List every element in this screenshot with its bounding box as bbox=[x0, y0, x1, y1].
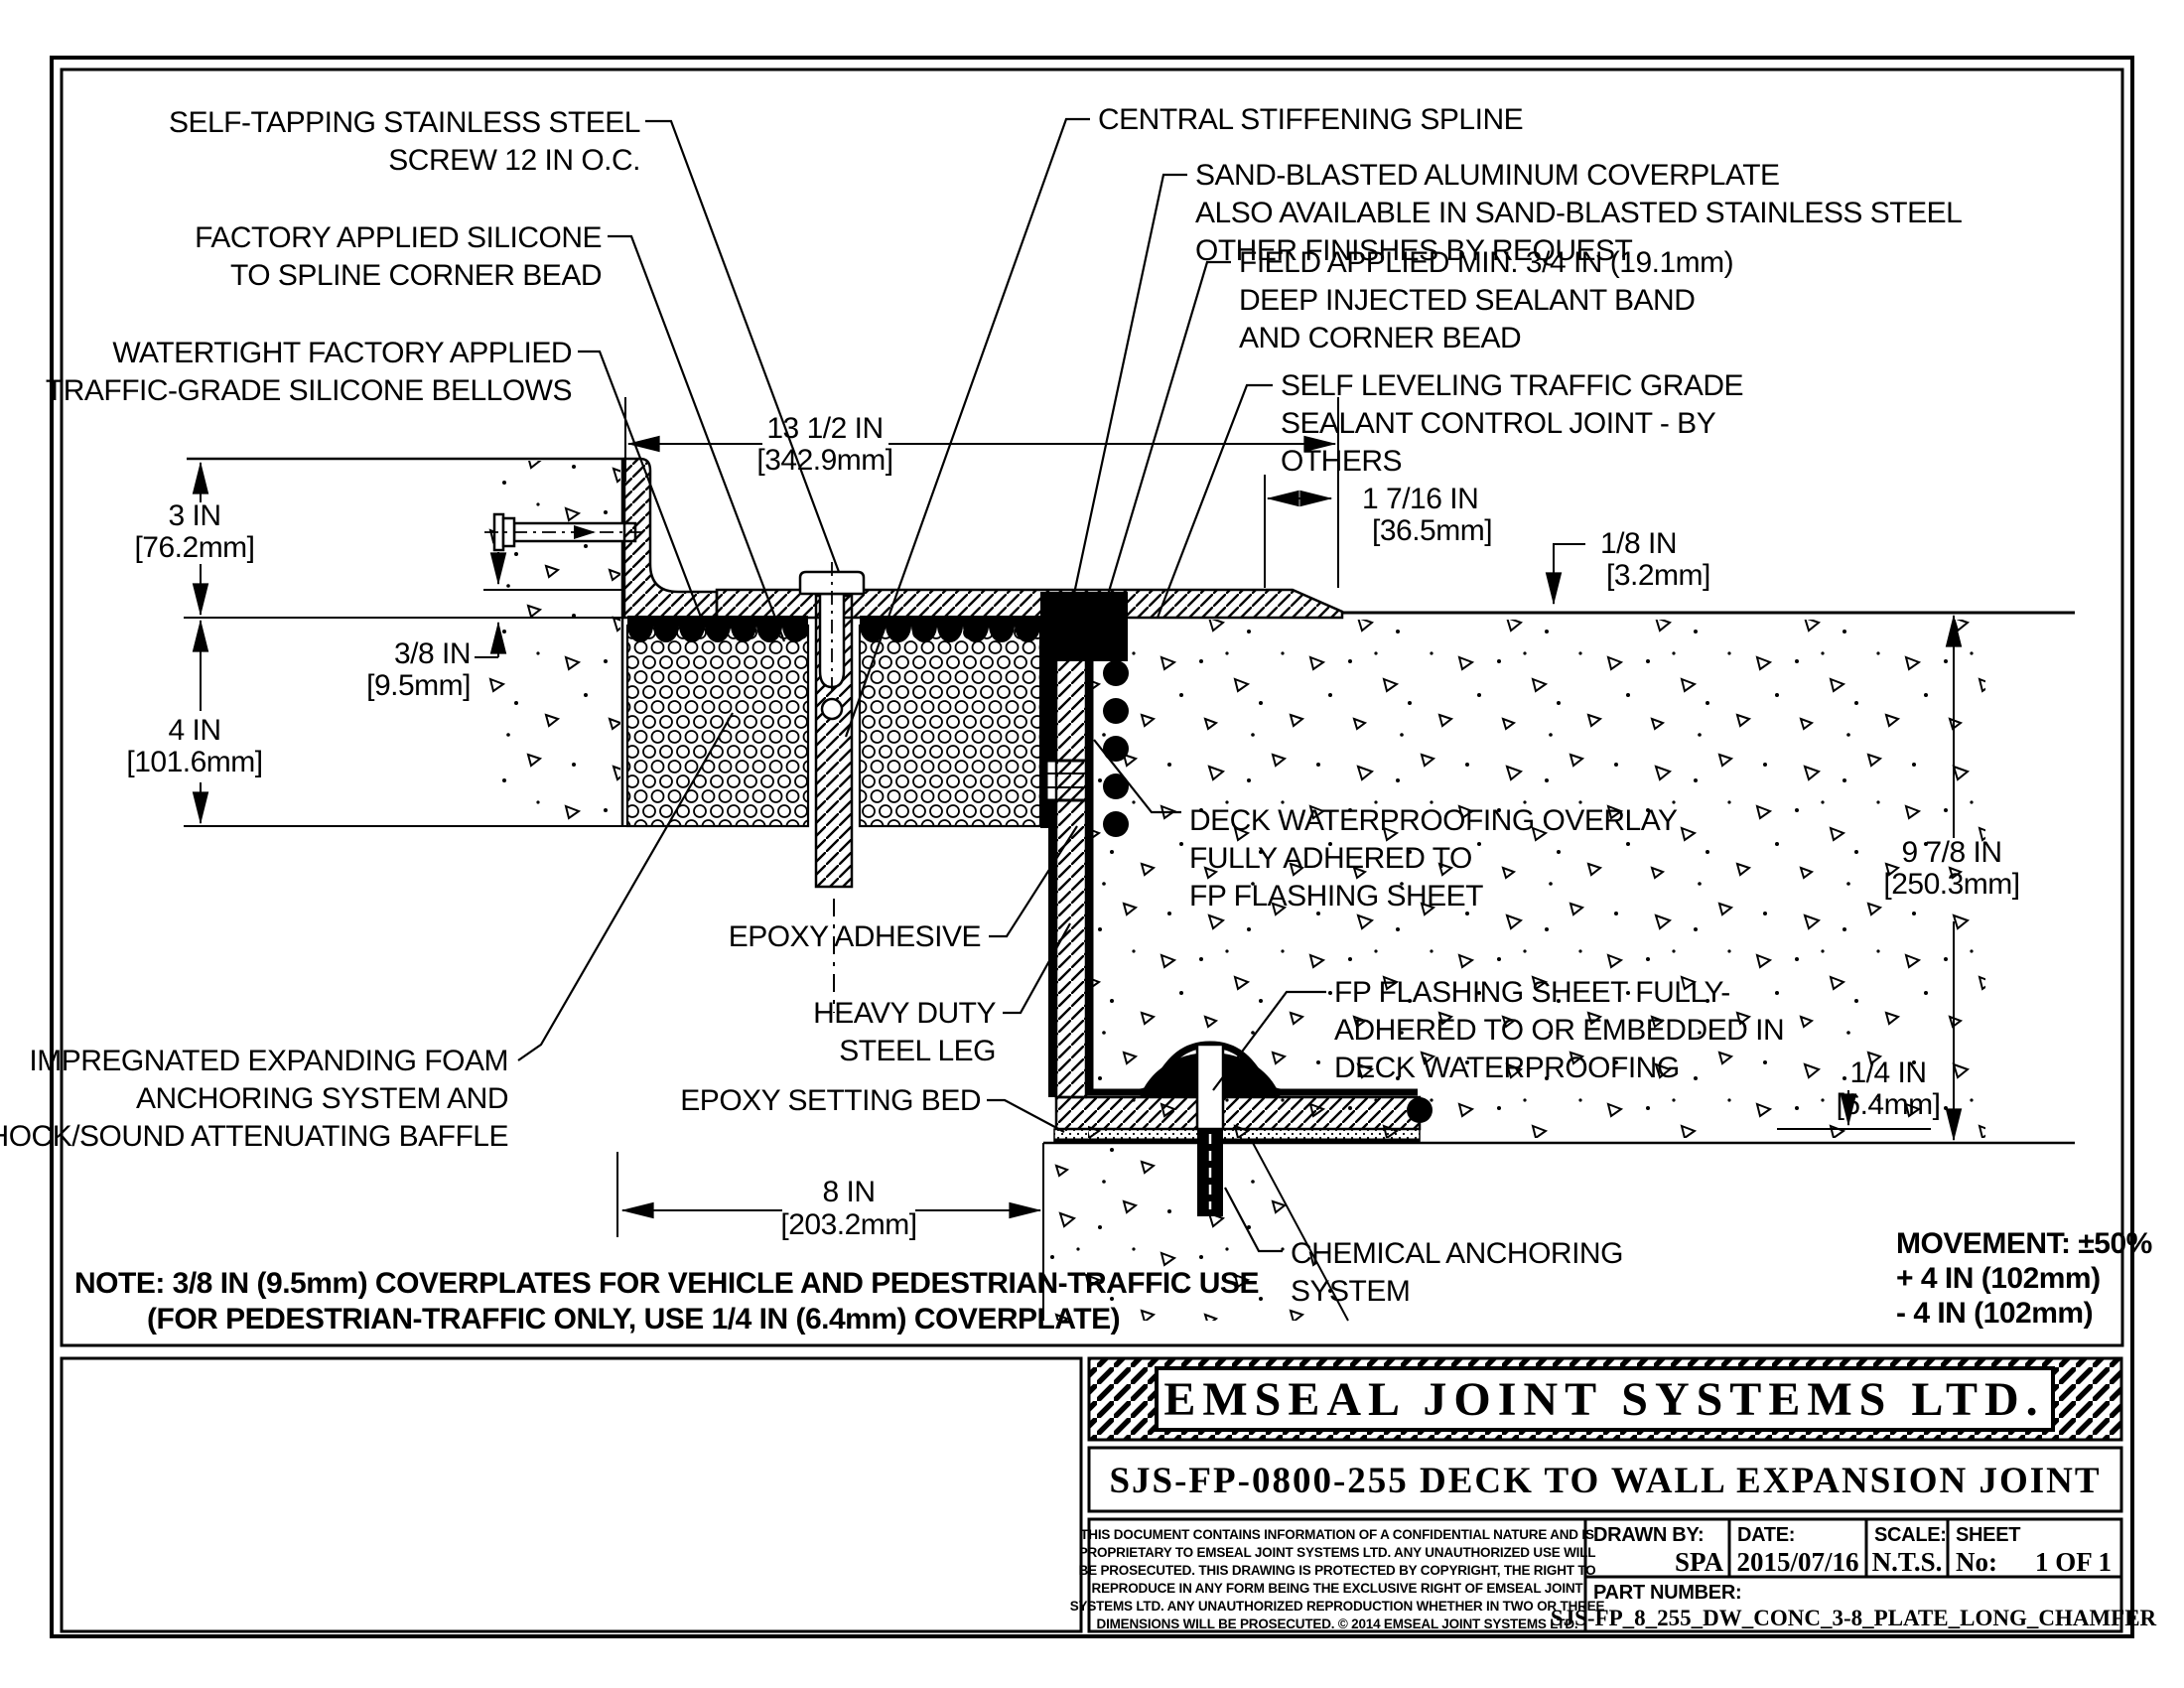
label-deck-waterproofing-line-1: DECK WATERPROOFING OVERLAY bbox=[1189, 804, 1678, 837]
label-field-applied-line-1: FIELD APPLIED MIN. 3/4 IN (19.1mm) bbox=[1239, 246, 1733, 279]
legal-line-3: BE PROSECUTED. THIS DRAWING IS PROTECTED… bbox=[1079, 1563, 1596, 1578]
dim-bed-thickness-line-1: 1/4 IN bbox=[1849, 1056, 1926, 1089]
legal-line-5: SYSTEMS LTD. ANY UNAUTHORIZED REPRODUCTI… bbox=[1070, 1599, 1605, 1614]
title-block: EMSEAL JOINT SYSTEMS LTD. SJS-FP-0800-25… bbox=[62, 1358, 2157, 1631]
dim-joint-opening-line-1: 8 IN bbox=[822, 1176, 875, 1208]
drawing-title-box: SJS-FP-0800-255 DECK TO WALL EXPANSION J… bbox=[1089, 1448, 2121, 1511]
note-line-2: (FOR PEDESTRIAN-TRAFFIC ONLY, USE 1/4 IN… bbox=[147, 1303, 1120, 1336]
left-wall-concrete bbox=[488, 459, 622, 826]
company-name: EMSEAL JOINT SYSTEMS LTD. bbox=[1163, 1373, 2044, 1426]
foam-block-right bbox=[860, 626, 1040, 826]
dim-top-width-line-1: 13 1/2 IN bbox=[766, 412, 883, 445]
dim-plate-lip-line-1: 1/8 IN bbox=[1600, 527, 1677, 560]
label-epoxy-setting-bed: EPOXY SETTING BED bbox=[680, 1084, 981, 1117]
dim-bed-thickness-line-2: [6.4mm] bbox=[1837, 1088, 1941, 1121]
label-fp-flashing-line-3: DECK WATERPROOFING bbox=[1334, 1052, 1680, 1084]
drawing-canvas: 13 1/2 IN [342.9mm] 1 7/16 IN [36.5mm] 1… bbox=[0, 0, 2184, 1688]
label-field-applied-line-3: AND CORNER BEAD bbox=[1239, 322, 1521, 354]
label-factory-silicone-line-2: TO SPLINE CORNER BEAD bbox=[230, 259, 602, 292]
chemical-anchor-bolt bbox=[1197, 1045, 1223, 1216]
label-chemical-anchor-line-2: SYSTEM bbox=[1291, 1275, 1410, 1308]
label-self-leveling-line-3: OTHERS bbox=[1281, 445, 1402, 478]
drawing-title: SJS-FP-0800-255 DECK TO WALL EXPANSION J… bbox=[1109, 1461, 2101, 1501]
date-value: 2015/07/16 bbox=[1736, 1547, 1858, 1577]
drawn-by-label: DRAWN BY: bbox=[1593, 1524, 1704, 1546]
dim-wall-height-line-2: [250.3mm] bbox=[1883, 868, 2019, 901]
dim-wall-upstand-line-2: [76.2mm] bbox=[134, 531, 254, 564]
epoxy-setting-bed bbox=[1054, 1129, 1420, 1143]
dim-foam-depth-line-2: [101.6mm] bbox=[126, 746, 262, 778]
label-impregnated-foam-line-2: ANCHORING SYSTEM AND bbox=[136, 1082, 508, 1115]
label-impregnated-foam-line-1: IMPREGNATED EXPANDING FOAM bbox=[29, 1045, 508, 1077]
dim-plate-lip-line-2: [3.2mm] bbox=[1606, 559, 1710, 592]
title-block-left-box bbox=[62, 1358, 1081, 1631]
label-self-leveling-line-1: SELF LEVELING TRAFFIC GRADE bbox=[1281, 369, 1743, 402]
label-coverplate-line-1: SAND-BLASTED ALUMINUM COVERPLATE bbox=[1195, 159, 1780, 192]
label-fp-flashing-line-2: ADHERED TO OR EMBEDDED IN bbox=[1334, 1014, 1784, 1047]
date-label: DATE: bbox=[1737, 1524, 1795, 1546]
note-line-1: NOTE: 3/8 IN (9.5mm) COVERPLATES FOR VEH… bbox=[74, 1267, 1259, 1300]
label-watertight-line-1: WATERTIGHT FACTORY APPLIED bbox=[112, 337, 572, 369]
dim-wall-upstand-line-1: 3 IN bbox=[168, 499, 220, 532]
dim-joint-opening-line-2: [203.2mm] bbox=[780, 1208, 916, 1241]
label-factory-silicone-line-1: FACTORY APPLIED SILICONE bbox=[195, 221, 602, 254]
movement-line-3: - 4 IN (102mm) bbox=[1896, 1297, 2093, 1330]
label-watertight-line-2: TRAFFIC-GRADE SILICONE BELLOWS bbox=[46, 374, 572, 407]
label-self-tapping-line-2: SCREW 12 IN O.C. bbox=[388, 144, 640, 177]
cad-sheet: 13 1/2 IN [342.9mm] 1 7/16 IN [36.5mm] 1… bbox=[0, 0, 2184, 1688]
dim-foam-depth-line-1: 4 IN bbox=[168, 714, 220, 747]
label-coverplate-line-2: ALSO AVAILABLE IN SAND-BLASTED STAINLESS… bbox=[1195, 197, 1962, 229]
label-chemical-anchor-line-1: CHEMICAL ANCHORING bbox=[1291, 1237, 1623, 1270]
drawn-by-value: SPA bbox=[1675, 1547, 1724, 1577]
dim-plate-thickness-line-1: 3/8 IN bbox=[394, 637, 471, 670]
label-central-spline: CENTRAL STIFFENING SPLINE bbox=[1098, 103, 1523, 136]
label-deck-waterproofing-line-3: FP FLASHING SHEET bbox=[1189, 880, 1483, 913]
movement-block: MOVEMENT: ±50% + 4 IN (102mm) - 4 IN (10… bbox=[1896, 1227, 2152, 1330]
label-deck-waterproofing-line-2: FULLY ADHERED TO bbox=[1189, 842, 1472, 875]
label-heavy-duty-line-1: HEAVY DUTY bbox=[813, 997, 996, 1030]
dim-plate-edge-line-2: [36.5mm] bbox=[1372, 514, 1492, 547]
label-self-tapping-line-1: SELF-TAPPING STAINLESS STEEL bbox=[169, 106, 640, 139]
legal-line-6: DIMENSIONS WILL BE PROSECUTED. © 2014 EM… bbox=[1097, 1617, 1578, 1631]
scale-value: N.T.S. bbox=[1872, 1547, 1943, 1577]
legal-line-4: REPRODUCE IN ANY FORM BEING THE EXCLUSIV… bbox=[1092, 1581, 1584, 1596]
scale-label: SCALE: bbox=[1874, 1524, 1947, 1546]
part-number-value: SJS-FP_8_255_DW_CONC_3-8_PLATE_LONG_CHAM… bbox=[1551, 1606, 2157, 1630]
movement-line-1: MOVEMENT: ±50% bbox=[1896, 1227, 2152, 1260]
legal-line-1: THIS DOCUMENT CONTAINS INFORMATION OF A … bbox=[1080, 1527, 1594, 1542]
label-field-applied-line-2: DEEP INJECTED SEALANT BAND bbox=[1239, 284, 1695, 317]
movement-line-2: + 4 IN (102mm) bbox=[1896, 1262, 2101, 1295]
fields-area: THIS DOCUMENT CONTAINS INFORMATION OF A … bbox=[1070, 1519, 2157, 1631]
part-number-label: PART NUMBER: bbox=[1593, 1582, 1741, 1604]
label-self-leveling-line-2: SEALANT CONTROL JOINT - BY bbox=[1281, 407, 1716, 440]
sheet-no-value: 1 OF 1 bbox=[2035, 1547, 2112, 1577]
label-heavy-duty-line-2: STEEL LEG bbox=[839, 1035, 996, 1067]
label-fp-flashing-line-1: FP FLASHING SHEET FULLY- bbox=[1334, 976, 1730, 1009]
label-impregnated-foam-line-3: SHOCK/SOUND ATTENUATING BAFFLE bbox=[0, 1120, 508, 1153]
sheet-no-label: No: bbox=[1956, 1547, 1997, 1577]
company-banner: EMSEAL JOINT SYSTEMS LTD. bbox=[1089, 1358, 2121, 1440]
dim-plate-thickness-line-2: [9.5mm] bbox=[366, 669, 471, 702]
label-epoxy-adhesive: EPOXY ADHESIVE bbox=[729, 920, 981, 953]
dim-plate-edge-line-1: 1 7/16 IN bbox=[1362, 483, 1478, 515]
foam-block-left bbox=[627, 626, 808, 826]
dim-wall-height-line-1: 9 7/8 IN bbox=[1901, 836, 2001, 869]
dim-top-width-line-2: [342.9mm] bbox=[756, 444, 892, 477]
legal-line-2: PROPRIETARY TO EMSEAL JOINT SYSTEMS LTD.… bbox=[1079, 1545, 1596, 1560]
sheet-label: SHEET bbox=[1956, 1524, 2020, 1546]
